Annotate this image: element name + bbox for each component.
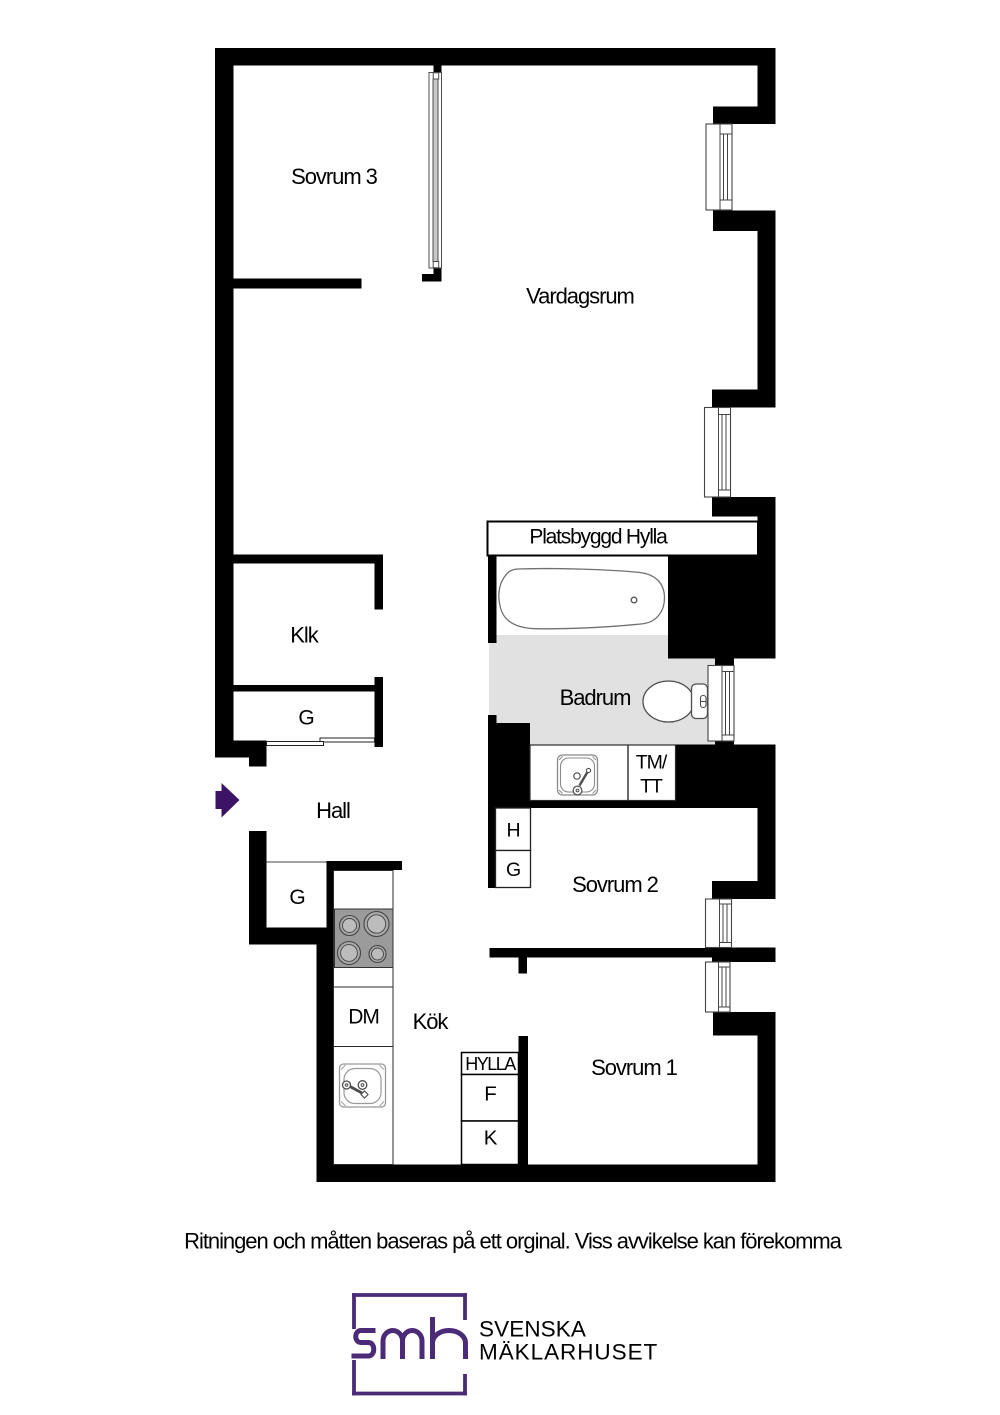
svg-text:Kök: Kök [413, 1009, 450, 1034]
svg-text:TM/: TM/ [636, 752, 668, 774]
svg-text:G: G [298, 707, 313, 730]
svg-text:Klk: Klk [290, 623, 319, 648]
svg-text:SVENSKA: SVENSKA [479, 1317, 586, 1342]
svg-text:HYLLA: HYLLA [465, 1054, 516, 1074]
svg-text:G: G [506, 859, 520, 881]
svg-text:Hall: Hall [316, 798, 350, 823]
svg-text:H: H [506, 820, 519, 842]
svg-text:G: G [289, 886, 304, 909]
svg-text:Vardagsrum: Vardagsrum [526, 284, 634, 309]
svg-text:F: F [484, 1083, 496, 1106]
svg-text:MÄKLARHUSET: MÄKLARHUSET [479, 1340, 658, 1365]
svg-text:DM: DM [348, 1006, 379, 1029]
svg-text:Ritningen och måtten baseras p: Ritningen och måtten baseras på ett orgi… [184, 1229, 842, 1254]
svg-text:Sovrum 3: Sovrum 3 [291, 164, 378, 189]
svg-text:K: K [484, 1127, 498, 1150]
svg-text:Sovrum 2: Sovrum 2 [572, 872, 659, 897]
svg-text:Sovrum 1: Sovrum 1 [591, 1055, 678, 1080]
svg-text:TT: TT [640, 776, 663, 798]
svg-text:Platsbyggd Hylla: Platsbyggd Hylla [529, 526, 668, 549]
svg-text:Badrum: Badrum [560, 685, 631, 710]
